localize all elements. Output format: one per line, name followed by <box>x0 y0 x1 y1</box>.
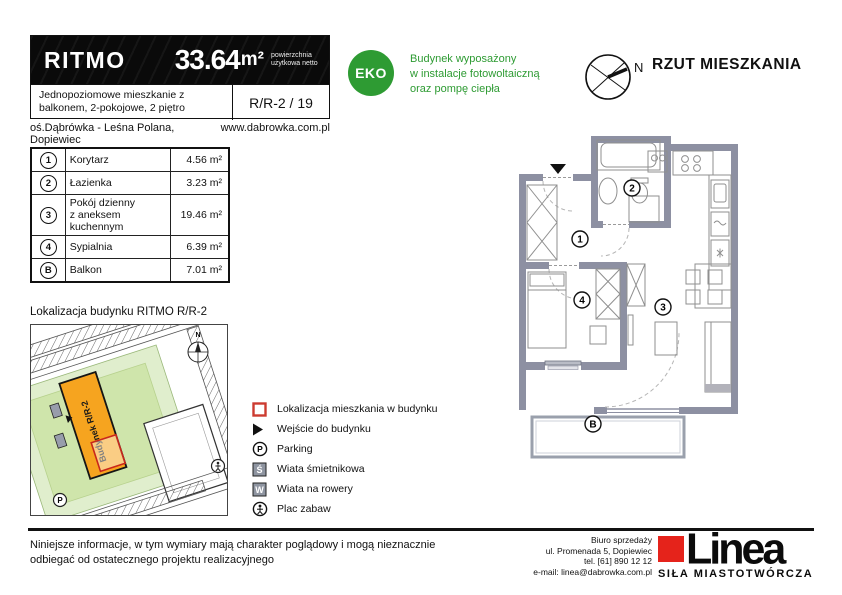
sliding-door <box>545 361 581 370</box>
trash-shed-icon: Ś <box>252 462 269 477</box>
room-name: Balkon <box>70 264 167 276</box>
contact-line: ul. Promenada 5, Dopiewiec <box>470 546 652 557</box>
legend-item: P Parking <box>252 442 442 456</box>
table-row: 3 Pokój dzienny z aneksem kuchennym 19.4… <box>31 195 229 236</box>
flyer-page: RITMO 33.64 m² powierzchnia użytkowa net… <box>0 0 842 595</box>
room-label-3: 3 <box>660 303 666 314</box>
parking-icon: P <box>252 441 269 457</box>
logo-square-icon <box>658 536 684 562</box>
website: www.dabrowka.com.pl <box>221 122 330 146</box>
legend-item: Lokalizacja mieszkania w budynku <box>252 402 442 416</box>
address-row: oś.Dąbrówka - Leśna Polana, Dopiewiec ww… <box>30 122 330 146</box>
compass-icon <box>582 50 636 104</box>
playground-icon <box>252 501 269 517</box>
disclaimer-line: Niniejsze informacje, w tym wymiary mają… <box>30 538 470 553</box>
room-label-1: 1 <box>577 235 583 246</box>
map-parking-label: P <box>57 496 63 505</box>
eco-line: w instalacje fotowoltaiczną <box>410 67 540 82</box>
eco-text: Budynek wyposażony w instalacje fotowolt… <box>410 50 540 97</box>
legend-label: Lokalizacja mieszkania w budynku <box>277 403 438 415</box>
room-label-balcony: B <box>589 420 596 431</box>
legend-item: Wejście do budynku <box>252 422 442 436</box>
page-title: RZUT MIESZKANIA <box>652 56 802 74</box>
entrance-icon <box>252 423 269 436</box>
svg-text:Ś: Ś <box>256 464 262 475</box>
balcony-outline <box>532 417 684 457</box>
sofa-armrest <box>705 384 731 392</box>
map-parking-icon: P <box>54 494 67 507</box>
unit-code: R/R-2 / 19 <box>232 85 329 120</box>
room-label-4: 4 <box>579 296 585 307</box>
contact-line: e-mail: linea@dabrowka.com.pl <box>470 567 652 578</box>
legend-item: Plac zabaw <box>252 502 442 516</box>
contact-line: Biuro sprzedaży <box>470 535 652 546</box>
room-area: 19.46 m² <box>171 195 229 236</box>
header-black-bar: RITMO 33.64 m² powierzchnia użytkowa net… <box>31 36 329 84</box>
room-number-badge: 1 <box>40 152 57 169</box>
legend-item: Ś Wiata śmietnikowa <box>252 462 442 476</box>
entrance-triangle-icon <box>550 164 566 174</box>
table-row: 1 Korytarz 4.56 m² <box>31 148 229 172</box>
north-label: N <box>634 60 643 75</box>
eco-line: oraz pompę ciepła <box>410 82 540 97</box>
area-unit: m² <box>241 49 264 71</box>
eko-badge-icon: EKO <box>348 50 394 96</box>
map-title: Lokalizacja budynku RITMO R/R-2 <box>30 306 207 318</box>
logo-wordmark: Linea <box>686 531 783 568</box>
room-name: Korytarz <box>70 154 167 166</box>
room-number-badge: 3 <box>40 207 57 224</box>
estate-location: oś.Dąbrówka - Leśna Polana, Dopiewiec <box>30 122 221 146</box>
disclaimer-line: odbiegać od ostatecznego projektu realiz… <box>30 553 470 568</box>
legend-label: Wiata na rowery <box>277 483 353 495</box>
balcony-door <box>605 409 679 413</box>
sales-office-contact: Biuro sprzedaży ul. Promenada 5, Dopiewi… <box>470 535 652 577</box>
map-playground-icon <box>212 460 225 473</box>
svg-text:W: W <box>255 485 264 495</box>
room-number-badge: 2 <box>40 175 57 192</box>
legend-label: Wiata śmietnikowa <box>277 463 365 475</box>
room-number-badge: B <box>40 262 57 279</box>
apartment-description: Jednopoziomowe mieszkanie z balkonem, 2-… <box>31 85 232 120</box>
legend-label: Parking <box>277 443 313 455</box>
contact-line: tel. [61] 890 12 12 <box>470 556 652 567</box>
room-area: 6.39 m² <box>171 236 229 259</box>
area-value: 33.64 <box>175 44 240 76</box>
legend-label: Wejście do budynku <box>277 423 371 435</box>
eco-section: EKO Budynek wyposażony w instalacje foto… <box>348 50 540 97</box>
header-box: RITMO 33.64 m² powierzchnia użytkowa net… <box>30 35 330 119</box>
floor-plan: 1 2 3 4 B <box>505 130 797 492</box>
legend-item: W Wiata na rowery <box>252 482 442 496</box>
room-number-badge: 4 <box>40 239 57 256</box>
linea-logo: Linea SIŁA MIASTOTWÓRCZA <box>658 531 816 580</box>
furniture <box>527 140 731 392</box>
table-row: 4 Sypialnia 6.39 m² <box>31 236 229 259</box>
area-note: powierzchnia użytkowa netto <box>271 52 323 68</box>
rooms-table: 1 Korytarz 4.56 m² 2 Łazienka 3.23 m² 3 … <box>30 147 230 283</box>
svg-text:P: P <box>257 444 263 454</box>
room-area: 7.01 m² <box>171 259 229 283</box>
table-row: B Balkon 7.01 m² <box>31 259 229 283</box>
legend: Lokalizacja mieszkania w budynku Wejście… <box>252 402 442 516</box>
disclaimer: Niniejsze informacje, w tym wymiary mają… <box>30 538 470 568</box>
map-north-label: N <box>195 332 200 339</box>
eco-line: Budynek wyposażony <box>410 52 540 67</box>
brand-logo: RITMO <box>31 47 175 74</box>
apartment-location-icon <box>252 402 269 417</box>
room-label-2: 2 <box>629 184 635 195</box>
table-row: 2 Łazienka 3.23 m² <box>31 172 229 195</box>
bike-shed-icon: W <box>252 482 269 497</box>
room-area: 4.56 m² <box>171 148 229 172</box>
room-area: 3.23 m² <box>171 172 229 195</box>
room-name: Łazienka <box>70 177 167 189</box>
room-name: Sypialnia <box>70 241 167 253</box>
location-map: Budynek R/R-2 N P <box>30 324 228 516</box>
header-white-row: Jednopoziomowe mieszkanie z balkonem, 2-… <box>31 84 329 120</box>
room-name-line2: z aneksem kuchennym <box>70 209 167 233</box>
area-group: 33.64 m² powierzchnia użytkowa netto <box>175 44 329 76</box>
room-name: Pokój dzienny <box>70 197 167 209</box>
legend-label: Plac zabaw <box>277 503 331 515</box>
